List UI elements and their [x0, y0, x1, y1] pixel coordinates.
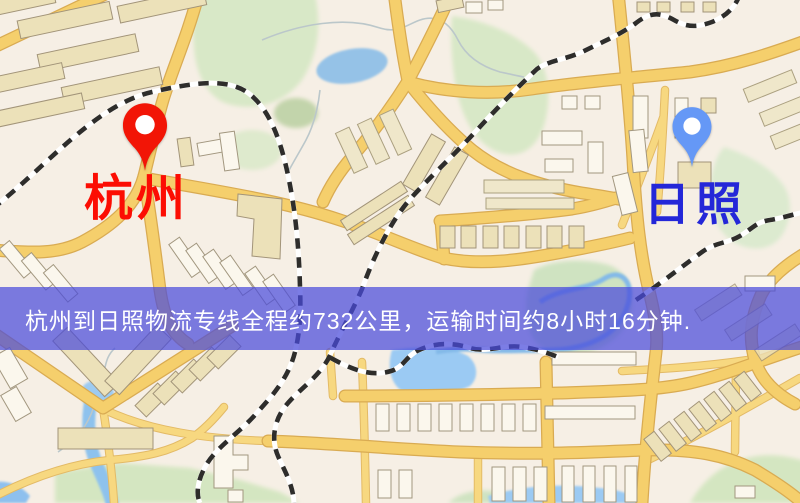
origin-label: 杭州	[84, 175, 188, 224]
origin-pin-icon[interactable]	[119, 102, 171, 172]
destination-marker[interactable]	[669, 106, 715, 168]
route-info-text: 杭州到日照物流专线全程约732公里，运输时间约8小时16分钟.	[25, 302, 691, 336]
destination-pin-icon[interactable]	[669, 106, 715, 168]
route-info-banner: 杭州到日照物流专线全程约732公里，运输时间约8小时16分钟.	[0, 287, 800, 350]
map-screenshot: 杭州 日照 杭州到日照物流专线全程约732公里，运输时间约8小时16分钟.	[0, 0, 800, 503]
destination-label: 日照	[644, 181, 748, 227]
origin-marker[interactable]	[119, 102, 171, 172]
map-canvas	[0, 0, 800, 503]
